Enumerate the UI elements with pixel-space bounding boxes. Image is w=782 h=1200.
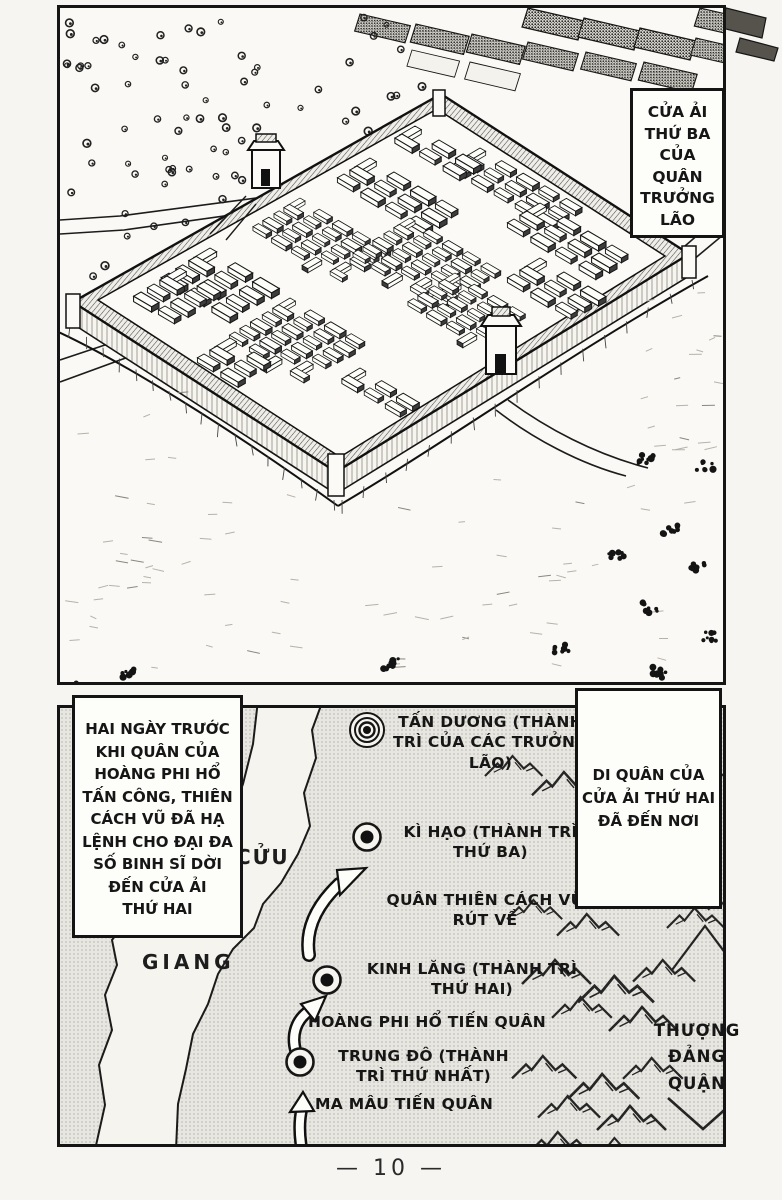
narration-box-right-text: DI QUÂN CỦA CỬA ẢI THỨ HAI ĐÃ ĐẾN NƠI [582,764,715,833]
label-ki-hao: KÌ HẠO (THÀNH TRÌ THỨ BA) [393,822,588,863]
narration-box-left: HAI NGÀY TRƯỚC KHI QUÂN CỦA HOÀNG PHI HỔ… [72,695,243,938]
narration-box-right: DI QUÂN CỦA CỬA ẢI THỨ HAI ĐÃ ĐẾN NƠI [575,688,722,909]
label-retreat-thien-cach-vu: QUÂN THIÊN CÁCH VŨ RÚT VỀ [380,890,590,931]
retreat-arrow-thien-cach-vu [308,868,366,955]
caption-box-third-pass: CỬA ẢI THỨ BA CỦA QUÂN TRƯỞNG LÃO [630,88,725,238]
city-marker-kinh-lang [314,967,341,994]
page-number: — 10 — [0,1156,782,1181]
river-label-cuu: CỬU [236,845,290,869]
region-chevron-icon [668,1098,723,1129]
label-advance-ma-mau: MA MÂU TIẾN QUÂN [315,1094,493,1114]
crop-fields-art [355,8,723,92]
label-thuong-dang-region: THƯỢNG ĐẢNG QUẬN [638,1018,756,1097]
fortress-illustration [60,8,723,682]
label-kinh-lang: KINH LĂNG (THÀNH TRÌ THỨ HAI) [352,959,592,1000]
bush-art [74,452,718,682]
gate-tower-south [481,307,521,374]
advance-arrow-ma-mau [290,1092,314,1144]
city-marker-ki-hao [354,824,381,851]
river-label-giang: GIANG [142,950,235,974]
city-marker-trung-do [287,1049,314,1076]
label-trung-do: TRUNG ĐÔ (THÀNH TRÌ THỨ NHẤT) [326,1046,521,1087]
label-tan-duong: TẤN DƯƠNG (THÀNH TRÌ CỦA CÁC TRƯỞNG LÃO) [393,712,588,773]
field-bleed-art [726,0,782,62]
label-advance-hoang-phi-ho: HOÀNG PHI HỔ TIẾN QUÂN [308,1012,546,1032]
city-marker-tan-duong [350,713,384,747]
manga-page: TẤN DƯƠNG (THÀNH TRÌ CỦA CÁC TRƯỞNG LÃO)… [0,0,782,1200]
panel-fortress [57,5,726,685]
